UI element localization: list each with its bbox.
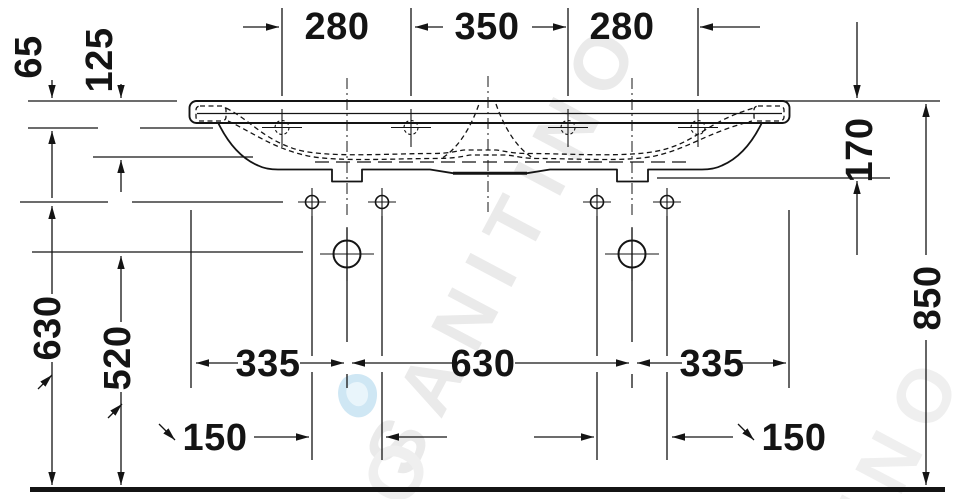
tap-hole-2 — [391, 109, 431, 147]
dim-label-850: 850 — [907, 266, 949, 331]
leader-arrow-150L — [159, 424, 175, 440]
basin-top-plate — [190, 101, 790, 123]
dim-label-630-middle: 630 — [451, 343, 516, 385]
small-hole-4 — [653, 188, 681, 216]
small-hole-2 — [368, 188, 396, 216]
leader-arrow-520 — [108, 404, 122, 418]
dim-label-170: 170 — [839, 118, 881, 183]
dim-label-top-280-left: 280 — [305, 6, 370, 48]
leader-arrow-150R — [738, 424, 754, 440]
leader-arrow-630 — [38, 375, 52, 389]
dim-label-top-280-right: 280 — [590, 6, 655, 48]
dim-label-520: 520 — [97, 326, 139, 391]
dim-label-top-350: 350 — [455, 6, 520, 48]
tap-hole-marks — [262, 109, 718, 147]
dim-label-150-left: 150 — [183, 417, 248, 459]
dim-label-65: 65 — [8, 35, 50, 78]
small-hole-1 — [298, 188, 326, 216]
washbasin-dimension-drawing: SANITINO SANITINO SANITINO — [0, 0, 960, 499]
basin-hidden-edges — [196, 104, 784, 162]
dim-label-335-right: 335 — [680, 343, 745, 385]
watermark: SANITINO SANITINO SANITINO — [143, 1, 960, 499]
bowl-hidden-contour-lower — [228, 121, 752, 160]
dim-label-150-right: 150 — [762, 417, 827, 459]
tap-hole-4 — [678, 109, 718, 147]
watermark-droplet-logo-icon — [338, 374, 377, 417]
technical-drawing-page: SANITINO SANITINO SANITINO — [0, 0, 960, 499]
small-hole-3 — [583, 188, 611, 216]
basin-outline — [190, 101, 790, 182]
dim-label-125: 125 — [79, 28, 121, 93]
dim-label-630-left: 630 — [27, 296, 69, 361]
watermark-text: SANITINO — [348, 1, 661, 489]
bowl-hidden-contour-upper — [226, 108, 754, 155]
dim-label-335-left: 335 — [236, 343, 301, 385]
